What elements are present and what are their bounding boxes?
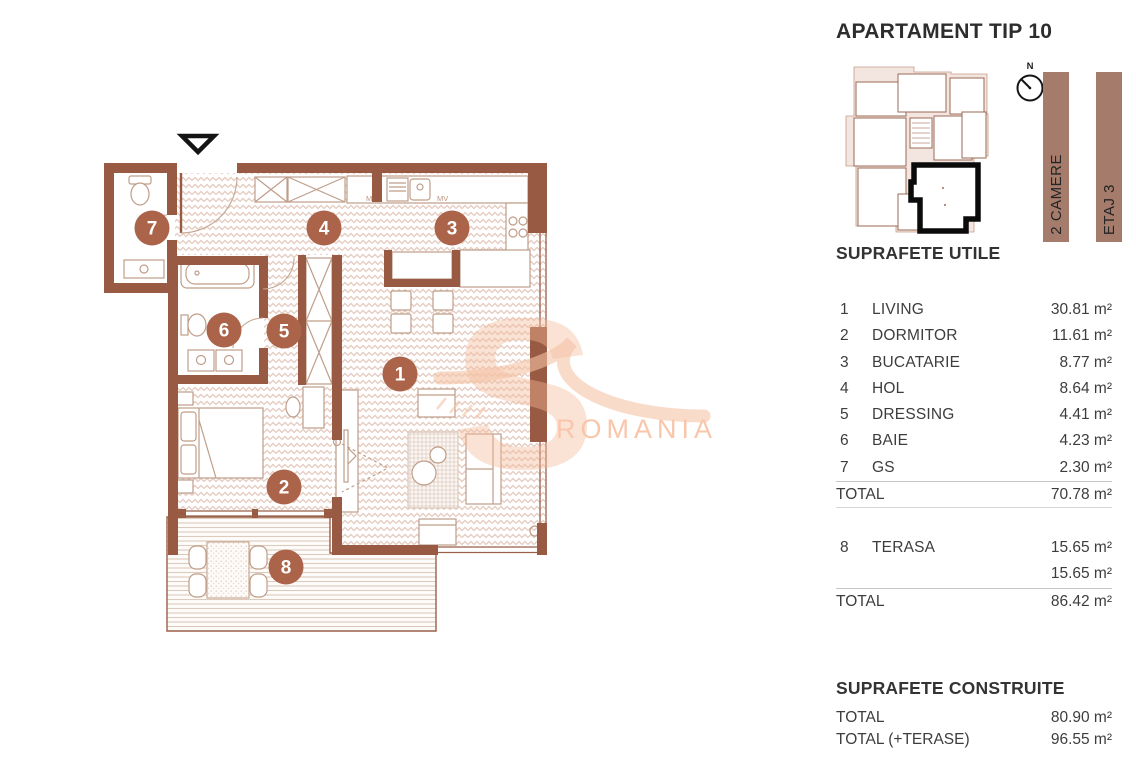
room-number <box>836 561 872 587</box>
table-row: 6 BAIE 4.23 m² <box>836 428 1112 454</box>
table-row: 8 TERASA 15.65 m² <box>836 535 1112 561</box>
svg-text:4: 4 <box>319 219 330 240</box>
table-row: 5 DRESSING 4.41 m² <box>836 402 1112 428</box>
table-row: 1 LIVING 30.81 m² <box>836 297 1112 323</box>
total-value: 96.55 m² <box>1051 729 1112 751</box>
room-area: 11.61 m² <box>1052 323 1112 349</box>
selected-unit-outline <box>911 165 978 231</box>
svg-text:6: 6 <box>219 321 230 342</box>
table-row: TOTAL 80.90 m² <box>836 707 1112 729</box>
room-name: DORMITOR <box>872 323 1052 349</box>
table-row: 4 HOL 8.64 m² <box>836 376 1112 402</box>
stair-core <box>910 118 932 148</box>
svg-text:5: 5 <box>279 322 290 343</box>
watermark: S ROMANIA <box>437 273 717 514</box>
svg-text:2: 2 <box>279 478 290 499</box>
utile-total-row: TOTAL 70.78 m² <box>836 481 1112 508</box>
utile-table: 1 LIVING 30.81 m² 2 DORMITOR 11.61 m² 3 … <box>836 297 1112 508</box>
room-badge-8: 8 <box>269 550 304 585</box>
room-name <box>872 561 1051 587</box>
room-area: 2.30 m² <box>1059 455 1112 481</box>
entrance-arrow-icon <box>182 136 214 152</box>
svg-text:1: 1 <box>395 365 406 386</box>
table-row: 3 BUCATARIE 8.77 m² <box>836 350 1112 376</box>
total-value: 86.42 m² <box>1051 589 1112 614</box>
room-badge-3: 3 <box>435 211 470 246</box>
svg-text:N: N <box>1027 61 1034 72</box>
room-name: BAIE <box>872 428 1059 454</box>
terase-total-row: TOTAL 86.42 m² <box>836 588 1112 614</box>
washer-label: M <box>366 194 372 203</box>
room-name: DRESSING <box>872 402 1059 428</box>
room-number: 5 <box>836 402 872 428</box>
room-badge-7: 7 <box>135 211 170 246</box>
svg-text:3: 3 <box>447 219 458 240</box>
room-area: 30.81 m² <box>1051 297 1112 323</box>
room-name: HOL <box>872 376 1059 402</box>
room-number: 4 <box>836 376 872 402</box>
table-row: 2 DORMITOR 11.61 m² <box>836 323 1112 349</box>
watermark-text: ROMANIA <box>556 414 717 444</box>
room-badge-2: 2 <box>267 470 302 505</box>
total-label: TOTAL <box>836 589 1051 614</box>
room-name: TERASA <box>872 535 1051 561</box>
page-title: APARTAMENT TIP 10 <box>836 20 1052 44</box>
room-number: 2 <box>836 323 872 349</box>
svg-text:7: 7 <box>147 219 158 240</box>
floor-level-bar: ETAJ 3 <box>1096 72 1122 242</box>
room-number: 3 <box>836 350 872 376</box>
room-name: LIVING <box>872 297 1051 323</box>
total-value: 80.90 m² <box>1051 707 1112 729</box>
room-area: 4.23 m² <box>1059 428 1112 454</box>
room-number: 1 <box>836 297 872 323</box>
room-area: 8.77 m² <box>1059 350 1112 376</box>
rooms-count-label: 2 CAMERE <box>1048 154 1065 235</box>
info-panel: APARTAMENT TIP 10 <box>836 0 1136 766</box>
section-heading-utile: SUPRAFETE UTILE <box>836 243 1000 264</box>
room-number: 8 <box>836 535 872 561</box>
apartment-brochure-page: M MV S ROMANIA 1 2 3 4 5 6 7 8 APARTAMEN… <box>0 0 1136 766</box>
room-area: 8.64 m² <box>1059 376 1112 402</box>
room-badge-6: 6 <box>207 313 242 348</box>
total-label: TOTAL <box>836 482 1051 507</box>
total-value: 70.78 m² <box>1051 482 1112 507</box>
terase-table: 8 TERASA 15.65 m² 15.65 m² TOTAL 86.42 m… <box>836 535 1112 614</box>
room-area: 15.65 m² <box>1051 561 1112 587</box>
room-name: BUCATARIE <box>872 350 1059 376</box>
room-area: 4.41 m² <box>1059 402 1112 428</box>
room-badge-4: 4 <box>307 211 342 246</box>
dishwasher-label: MV <box>437 194 448 203</box>
room-badge-5: 5 <box>267 314 302 349</box>
watermark-logo-letter: S <box>452 273 595 514</box>
floor-plan: M MV S ROMANIA 1 2 3 4 5 6 7 8 <box>0 0 830 766</box>
room-number: 6 <box>836 428 872 454</box>
building-locator-map <box>842 54 1002 239</box>
total-label: TOTAL <box>836 707 1051 729</box>
floor-level-label: ETAJ 3 <box>1101 184 1118 235</box>
room-area: 15.65 m² <box>1051 535 1112 561</box>
table-row: 7 GS 2.30 m² <box>836 455 1112 481</box>
room-name: GS <box>872 455 1059 481</box>
room-number: 7 <box>836 455 872 481</box>
table-row: 15.65 m² <box>836 561 1112 587</box>
section-heading-construite: SUPRAFETE CONSTRUITE <box>836 678 1065 699</box>
svg-text:8: 8 <box>281 558 292 579</box>
rooms-count-bar: 2 CAMERE <box>1043 72 1069 242</box>
construite-table: TOTAL 80.90 m² TOTAL (+TERASE) 96.55 m² <box>836 707 1112 752</box>
table-row: TOTAL (+TERASE) 96.55 m² <box>836 729 1112 751</box>
room-badge-1: 1 <box>383 357 418 392</box>
total-label: TOTAL (+TERASE) <box>836 729 1051 751</box>
hall-closets <box>255 177 345 202</box>
dressing-wardrobe <box>306 258 332 384</box>
